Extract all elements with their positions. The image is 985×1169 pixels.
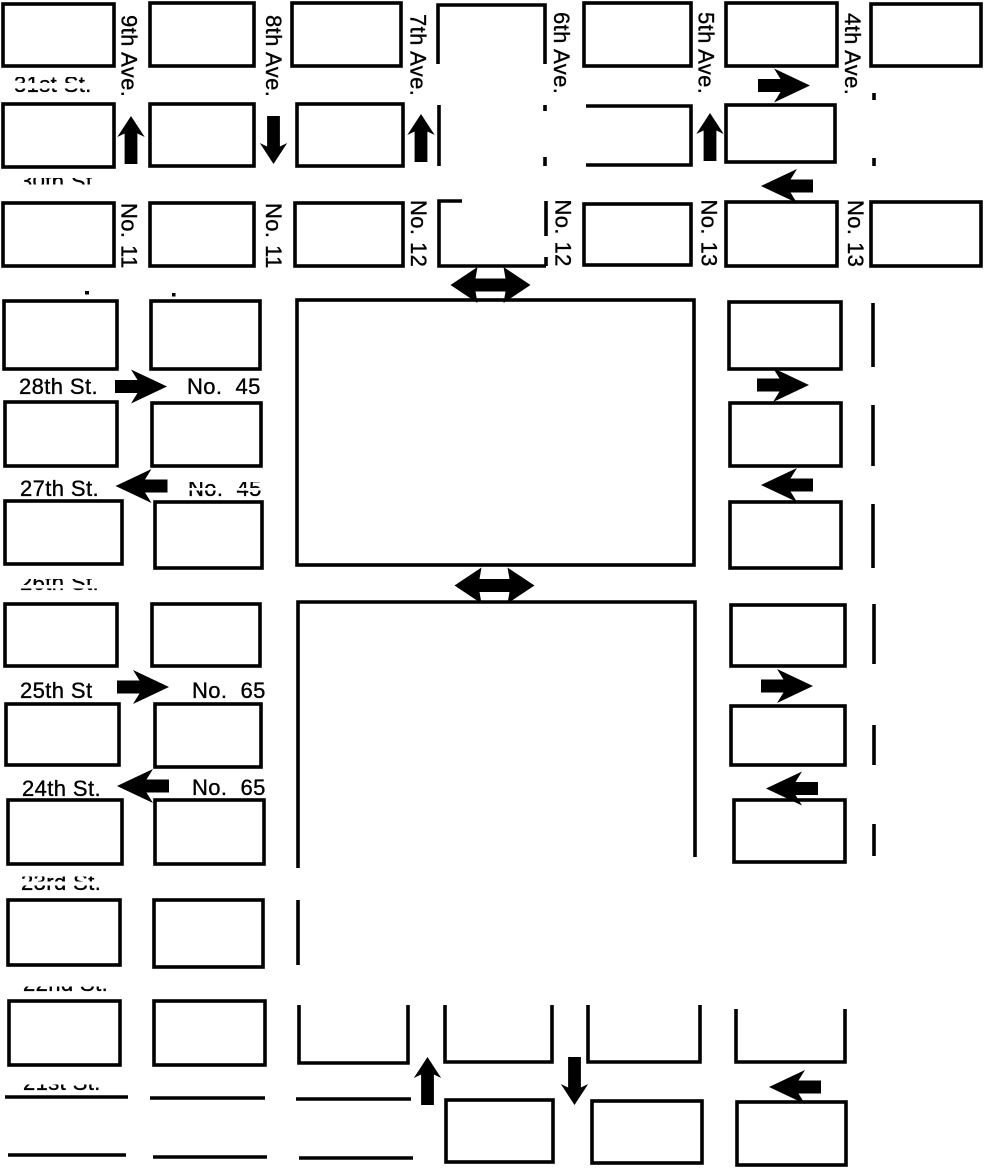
svg-text:27th St.: 27th St. <box>20 476 99 501</box>
svg-text:6th Ave.: 6th Ave. <box>549 12 574 94</box>
svg-text:8th Ave.: 8th Ave. <box>261 15 286 97</box>
svg-text:No. 12: No. 12 <box>406 200 431 267</box>
svg-text:No. 65: No. 65 <box>192 678 266 703</box>
svg-text:No. 65: No. 65 <box>192 775 266 800</box>
svg-text:9th Ave.: 9th Ave. <box>117 15 142 97</box>
svg-text:25th St: 25th St <box>20 678 93 703</box>
svg-text:4th Ave.: 4th Ave. <box>840 13 865 95</box>
svg-text:No. 45: No. 45 <box>187 374 261 399</box>
svg-text:7th Ave.: 7th Ave. <box>406 14 431 96</box>
svg-text:No. 13: No. 13 <box>697 200 722 267</box>
svg-text:28th St.: 28th St. <box>19 374 98 399</box>
svg-text:No. 13: No. 13 <box>843 200 868 267</box>
svg-text:No. 11: No. 11 <box>261 203 286 269</box>
svg-text:24th St.: 24th St. <box>22 776 101 801</box>
svg-text:5th Ave.: 5th Ave. <box>694 12 719 94</box>
svg-text:No. 12: No. 12 <box>551 200 576 267</box>
svg-text:No. 11: No. 11 <box>117 203 142 269</box>
